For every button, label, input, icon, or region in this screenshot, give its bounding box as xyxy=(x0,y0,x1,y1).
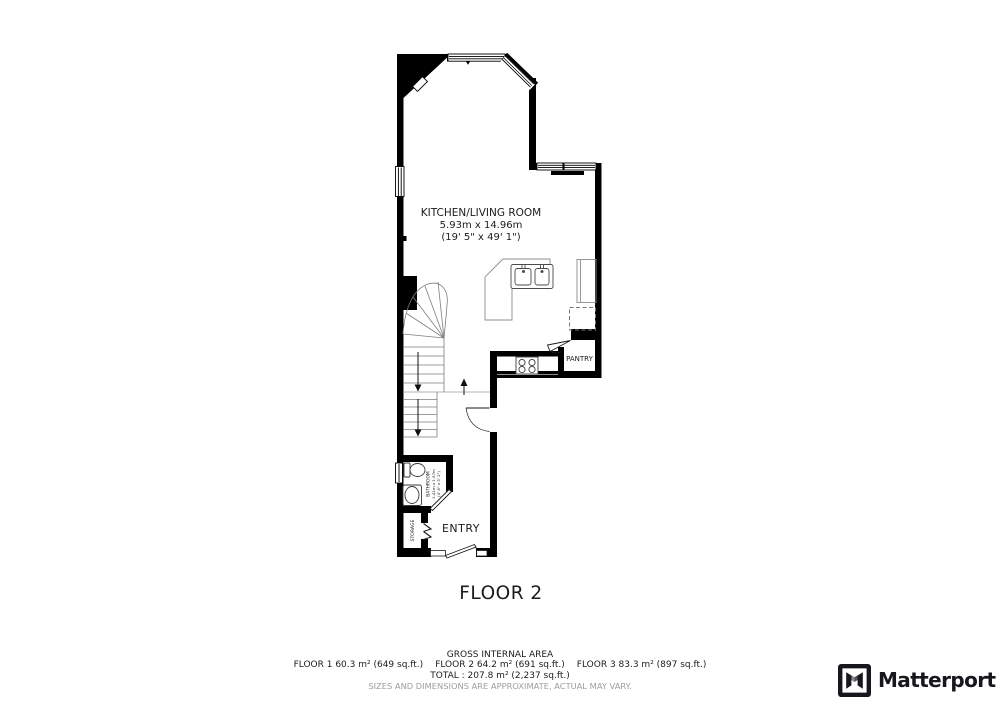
matterport-logo-text: Matterport xyxy=(878,663,995,697)
room-label-pantry: PANTRY xyxy=(566,355,593,363)
room-label-kitchen-living: KITCHEN/LIVING ROOM xyxy=(421,207,541,219)
floor-plan-page: KITCHEN/LIVING ROOM 5.93m x 14.96m (19' … xyxy=(0,0,1000,707)
room-dims-m-kitchen-living: 5.93m x 14.96m xyxy=(440,220,523,231)
fridge xyxy=(577,260,596,303)
windows xyxy=(396,54,597,483)
door-storage-bifold xyxy=(424,524,432,540)
bathroom-sink xyxy=(403,485,422,506)
window-diagonal xyxy=(501,54,535,87)
floor-3-area: FLOOR 3 83.3 m² (897 sq.ft.) xyxy=(577,660,707,670)
gross-internal-area-title: GROSS INTERNAL AREA xyxy=(0,650,1000,660)
kitchen-sink xyxy=(511,265,553,289)
floor-title: FLOOR 2 xyxy=(380,583,622,604)
room-label-bathroom-group: BATHROOM 1.41m x 1.57m (4' 8" x 5' 2") xyxy=(426,469,441,499)
appliance-dashed xyxy=(570,308,596,331)
floor-plan: KITCHEN/LIVING ROOM 5.93m x 14.96m (19' … xyxy=(380,40,620,570)
window-top-wall xyxy=(448,54,505,61)
matterport-logo-icon xyxy=(838,664,871,697)
room-dims-ft-bathroom: (4' 8" x 5' 2") xyxy=(436,471,441,497)
floor-1-area: FLOOR 1 60.3 m² (649 sq.ft.) xyxy=(294,660,424,670)
room-label-storage: STORAGE xyxy=(410,519,416,541)
matterport-logo: Matterport xyxy=(838,663,995,697)
room-dims-ft-kitchen-living: (19' 5" x 49' 1") xyxy=(441,232,520,243)
door-hall xyxy=(466,408,490,432)
floor-2-area: FLOOR 2 64.2 m² (691 sq.ft.) xyxy=(435,660,565,670)
door-entry xyxy=(431,545,488,559)
window-tick xyxy=(466,62,470,65)
toilet xyxy=(404,463,425,477)
window-left-wall xyxy=(396,167,405,197)
room-label-entry: ENTRY xyxy=(442,522,480,535)
window-step-wall xyxy=(537,163,596,170)
stove xyxy=(516,357,538,374)
